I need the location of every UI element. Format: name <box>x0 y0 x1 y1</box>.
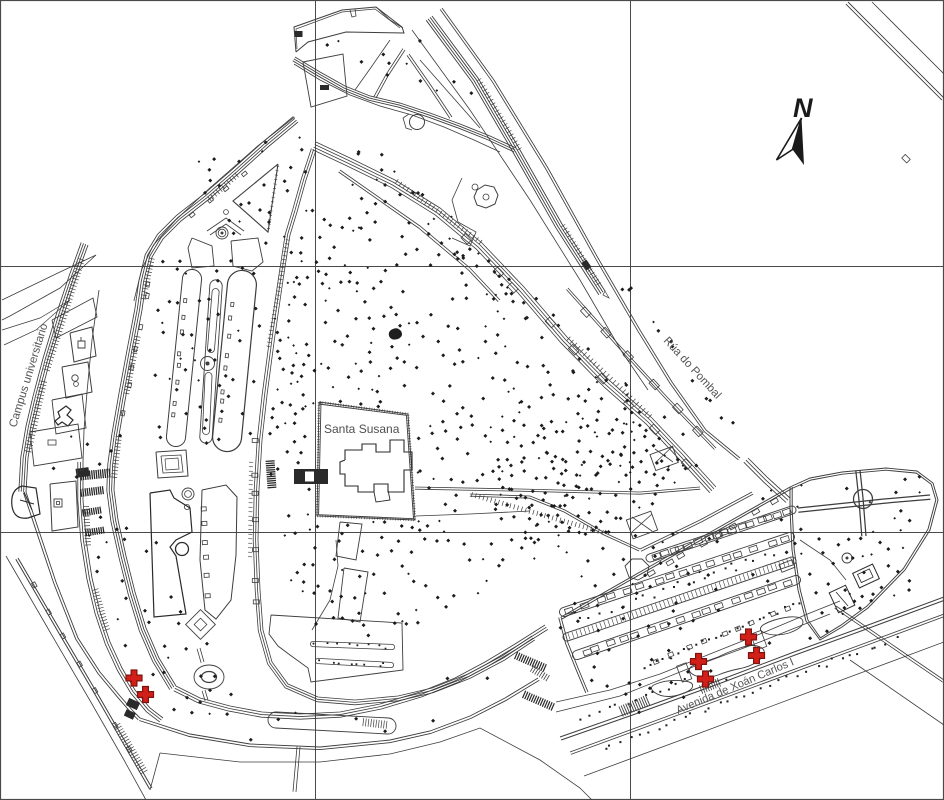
svg-text:Santa Susana: Santa Susana <box>324 422 400 436</box>
svg-text:N: N <box>793 93 813 123</box>
